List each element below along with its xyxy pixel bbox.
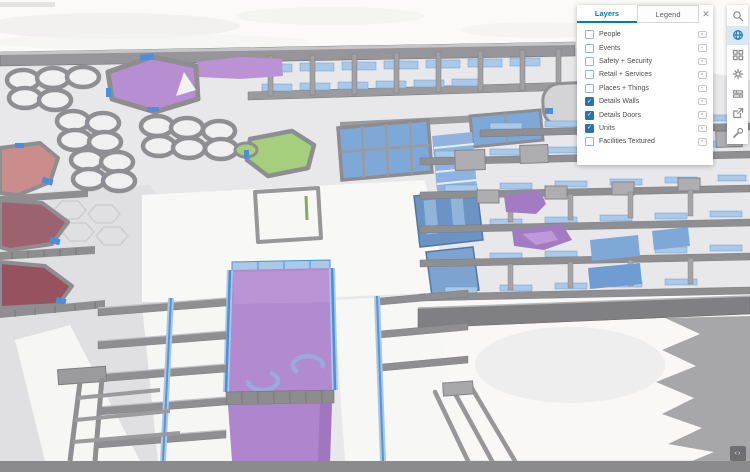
layer-options-icon[interactable] [698, 111, 707, 119]
layer-options-icon[interactable] [698, 125, 707, 133]
layer-checkbox[interactable] [585, 84, 594, 93]
settings-gear-icon[interactable] [727, 65, 748, 85]
layer-checkbox[interactable] [585, 97, 594, 106]
layer-options-icon[interactable] [698, 85, 707, 93]
layer-options-icon[interactable] [698, 58, 707, 66]
layer-options-icon[interactable] [698, 138, 707, 146]
basemap-globe-icon[interactable] [727, 26, 748, 46]
tab-layers[interactable]: Layers [577, 5, 637, 23]
courtyard-room-outline [255, 188, 321, 242]
layer-checkbox[interactable] [585, 70, 594, 79]
search-icon[interactable] [727, 6, 748, 26]
layer-checkbox[interactable] [585, 124, 594, 133]
attribution-expand-icon[interactable]: ‹› [730, 446, 746, 461]
layer-row-units[interactable]: Units [577, 122, 713, 135]
scene-base-strip [0, 461, 750, 472]
layer-label: Safety + Security [599, 58, 652, 65]
layer-checkbox[interactable] [585, 30, 594, 39]
layer-row-safety-security[interactable]: Safety + Security [577, 55, 713, 68]
layer-row-people[interactable]: People [577, 28, 713, 41]
purple-corridor [226, 260, 335, 461]
layer-options-icon[interactable] [698, 31, 707, 39]
close-icon[interactable]: ✕ [699, 5, 713, 23]
share-export-icon[interactable] [727, 104, 748, 124]
layer-label: People [599, 31, 621, 38]
layer-label: Units [599, 125, 615, 132]
layer-row-places-things[interactable]: Places + Things [577, 82, 713, 95]
layer-label: Retail + Services [599, 71, 652, 78]
layout-grid-icon[interactable] [727, 45, 748, 65]
layer-options-icon[interactable] [698, 71, 707, 79]
layer-options-icon[interactable] [698, 44, 707, 52]
layer-label: Events [599, 45, 620, 52]
tab-legend[interactable]: Legend [637, 5, 699, 23]
layer-checkbox[interactable] [585, 111, 594, 120]
layer-options-icon[interactable] [698, 98, 707, 106]
layer-label: Places + Things [599, 85, 649, 92]
panel-tabs: Layers Legend ✕ [577, 5, 713, 23]
layer-checkbox[interactable] [585, 137, 594, 146]
layer-row-facilities-textured[interactable]: Facilities Textured [577, 135, 713, 148]
layer-row-details-doors[interactable]: Details Doors [577, 108, 713, 121]
layer-row-details-walls[interactable]: Details Walls [577, 95, 713, 108]
layers-panel: Layers Legend ✕ People Events Safety + S… [577, 5, 713, 165]
layer-label: Facilities Textured [599, 138, 655, 145]
layer-label: Details Walls [599, 98, 639, 105]
layer-label: Details Doors [599, 112, 641, 119]
tools-wrench-icon[interactable] [727, 123, 748, 143]
layer-checkbox[interactable] [585, 57, 594, 66]
map-toolbar [727, 5, 748, 144]
layer-row-retail-services[interactable]: Retail + Services [577, 68, 713, 81]
layer-row-events[interactable]: Events [577, 41, 713, 54]
layer-list: People Events Safety + Security Retail +… [577, 23, 713, 149]
measure-icon[interactable] [727, 84, 748, 104]
layer-checkbox[interactable] [585, 44, 594, 53]
